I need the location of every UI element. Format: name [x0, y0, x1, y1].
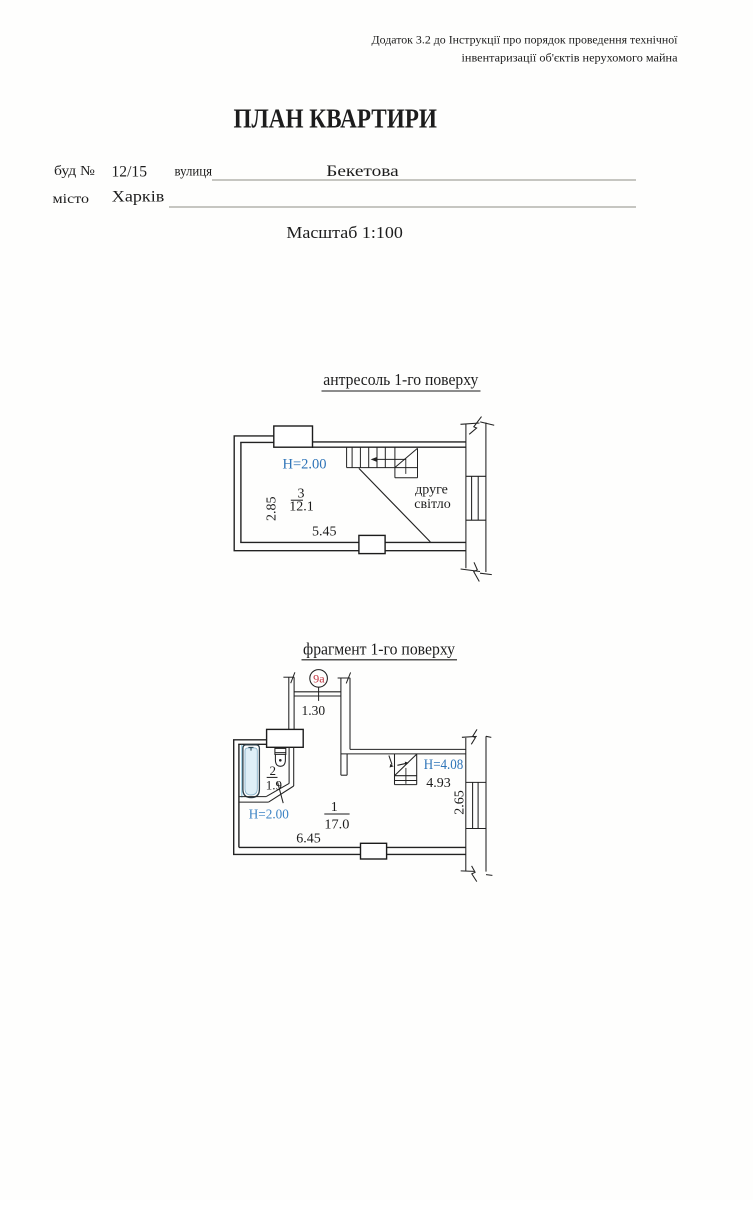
svg-text:9а: 9а [313, 673, 325, 685]
svg-text:місто: місто [53, 192, 90, 207]
svg-text:H=2.00: H=2.00 [283, 457, 327, 473]
svg-text:Масштаб 1:100: Масштаб 1:100 [286, 223, 403, 242]
svg-text:6.45: 6.45 [296, 831, 321, 846]
svg-text:1: 1 [331, 800, 338, 815]
svg-text:світло: світло [414, 497, 450, 512]
svg-text:4.93: 4.93 [426, 776, 451, 791]
svg-text:ПЛАН КВАРТИРИ: ПЛАН КВАРТИРИ [233, 103, 437, 134]
svg-text:Бекетова: Бекетова [326, 163, 399, 180]
svg-text:Харків: Харків [112, 189, 165, 206]
svg-text:2.65: 2.65 [453, 790, 468, 815]
svg-text:фрагмент 1-го поверху: фрагмент 1-го поверху [303, 640, 456, 659]
svg-text:антресоль 1-го поверху: антресоль 1-го поверху [323, 370, 479, 389]
svg-text:1.30: 1.30 [301, 703, 325, 718]
svg-text:5.45: 5.45 [312, 525, 337, 540]
svg-text:вулиця: вулиця [175, 165, 213, 180]
svg-text:12/15: 12/15 [112, 163, 148, 180]
svg-text:12.1: 12.1 [289, 500, 314, 515]
svg-text:H=2.00: H=2.00 [249, 808, 289, 823]
svg-text:інвентаризації об'єктів нерухо: інвентаризації об'єктів нерухомого майна [462, 53, 678, 65]
svg-text:друге: друге [415, 482, 448, 497]
svg-text:2: 2 [269, 763, 276, 778]
svg-text:Додаток 3.2 до Інструкції про: Додаток 3.2 до Інструкції про порядок пр… [372, 35, 679, 47]
svg-text:буд №: буд № [54, 164, 95, 179]
svg-text:H=4.08: H=4.08 [424, 757, 464, 773]
svg-text:17.0: 17.0 [324, 818, 349, 833]
svg-text:2.85: 2.85 [265, 497, 280, 522]
svg-text:1.9: 1.9 [266, 777, 282, 792]
